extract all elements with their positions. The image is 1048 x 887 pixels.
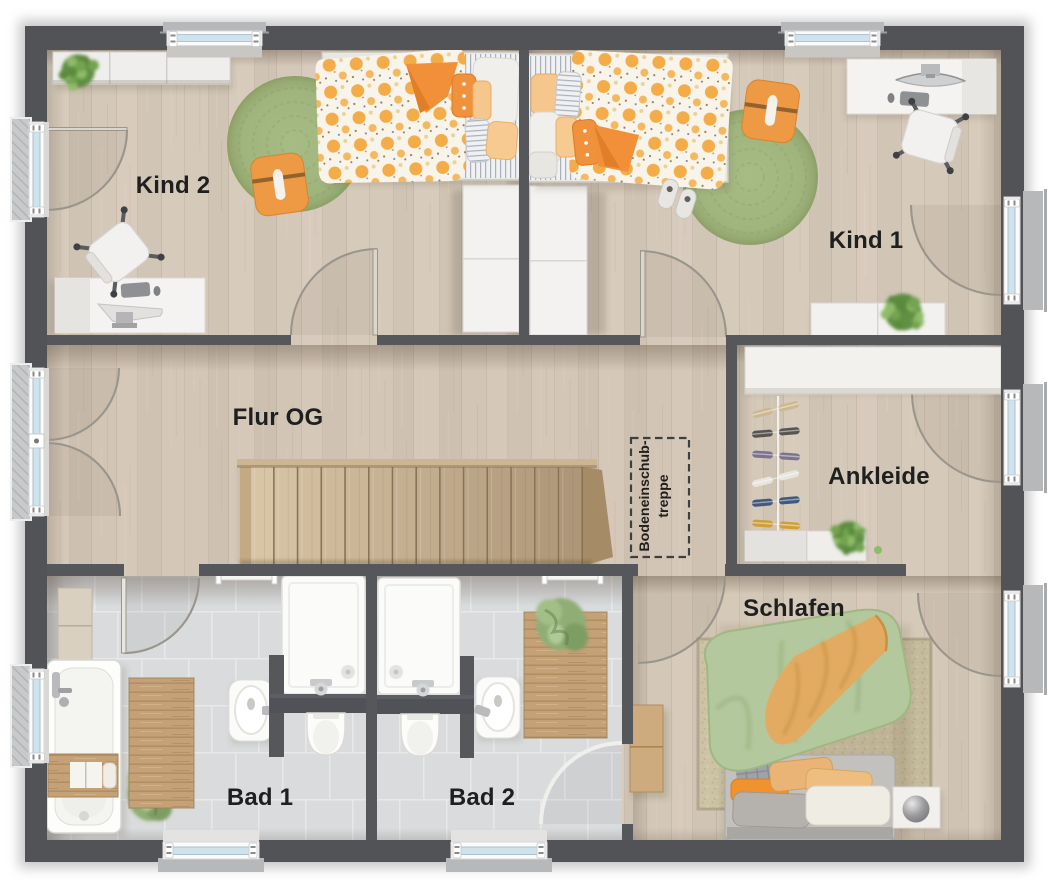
svg-text:Schlafen: Schlafen — [743, 595, 845, 622]
svg-text:Kind 1: Kind 1 — [829, 227, 904, 254]
svg-text:Bad 1: Bad 1 — [227, 784, 293, 811]
svg-text:Bad 2: Bad 2 — [449, 784, 515, 811]
svg-text:Flur OG: Flur OG — [233, 404, 324, 431]
svg-text:Kind 2: Kind 2 — [136, 172, 211, 199]
svg-text:treppe: treppe — [656, 474, 672, 517]
svg-text:Ankleide: Ankleide — [828, 463, 930, 490]
svg-text:Bodeneinschub-: Bodeneinschub- — [637, 440, 653, 551]
